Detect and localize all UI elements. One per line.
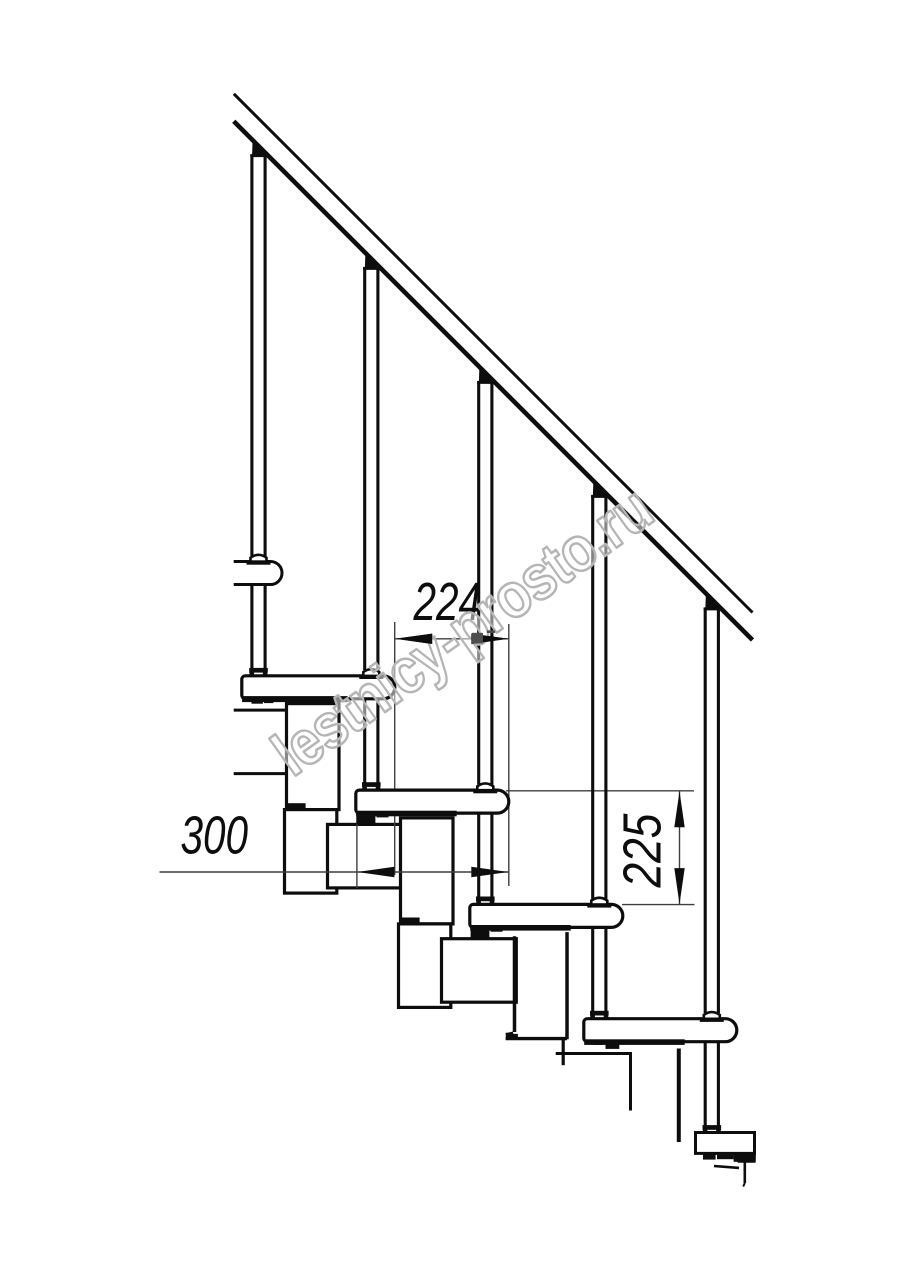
svg-text:300: 300 (181, 806, 249, 866)
svg-text:225: 225 (612, 813, 672, 888)
